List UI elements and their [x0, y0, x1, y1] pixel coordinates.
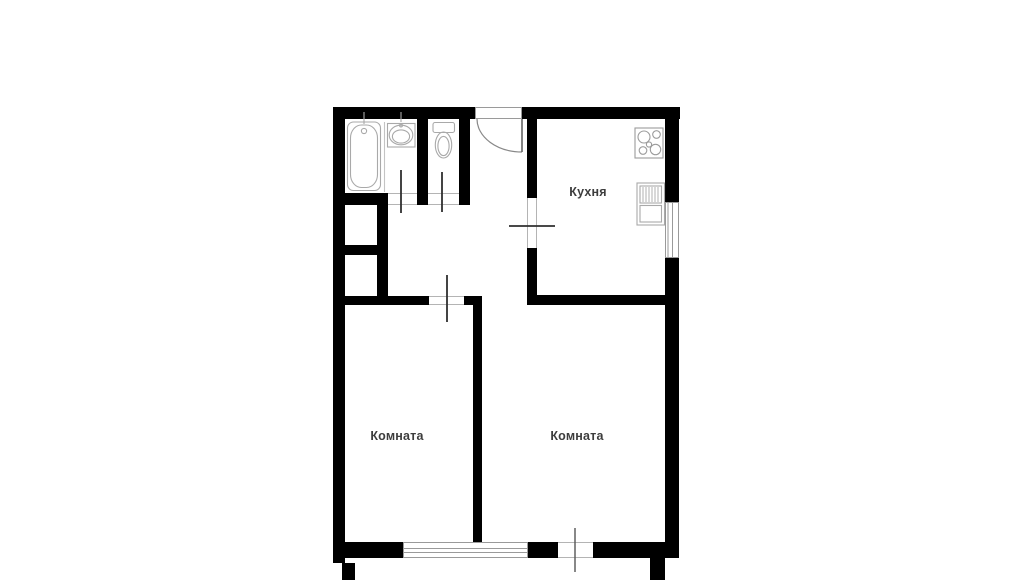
kitchen-sink-icon	[637, 183, 665, 225]
wall-right-upper	[665, 107, 679, 202]
floor-plan: Кухня Комната Комната	[0, 0, 1024, 580]
wall-kitchen-left-upper	[527, 119, 537, 198]
wall-closet-divider	[343, 245, 383, 255]
kitchen-window	[665, 202, 679, 258]
toilet-icon	[433, 123, 455, 159]
balcony-door-opening	[558, 542, 593, 558]
toilet-door-opening	[428, 193, 459, 205]
fixtures-overlay	[0, 0, 1024, 580]
wall-bottom-left-segment	[333, 542, 403, 558]
kitchen-label: Кухня	[569, 185, 607, 199]
wall-stub-bottom-left	[342, 563, 355, 580]
left-room-label: Комната	[370, 429, 423, 443]
wall-left-room-top	[333, 296, 429, 305]
entry-door-frame	[475, 107, 522, 119]
wall-bottom-right-segment	[593, 542, 679, 558]
wall-kitchen-bottom	[527, 295, 679, 305]
wall-bottom-middle-segment	[528, 542, 558, 558]
bathtub-icon	[348, 112, 385, 192]
bathroom-door-opening	[388, 193, 417, 205]
wall-middle-partition	[473, 296, 482, 543]
entry-door-icon	[477, 119, 522, 152]
right-room-label: Комната	[550, 429, 603, 443]
kitchen-door-opening	[527, 198, 537, 248]
wall-left	[333, 107, 345, 563]
wall-bath-toilet-divider	[417, 119, 428, 205]
wall-stub-bottom-right	[650, 558, 665, 580]
stove-icon	[635, 128, 663, 158]
wall-top-right	[522, 107, 680, 119]
wall-top-left	[333, 107, 475, 119]
left-room-window	[403, 542, 528, 558]
left-room-door-opening	[429, 296, 464, 305]
wall-toilet-right	[459, 119, 470, 205]
